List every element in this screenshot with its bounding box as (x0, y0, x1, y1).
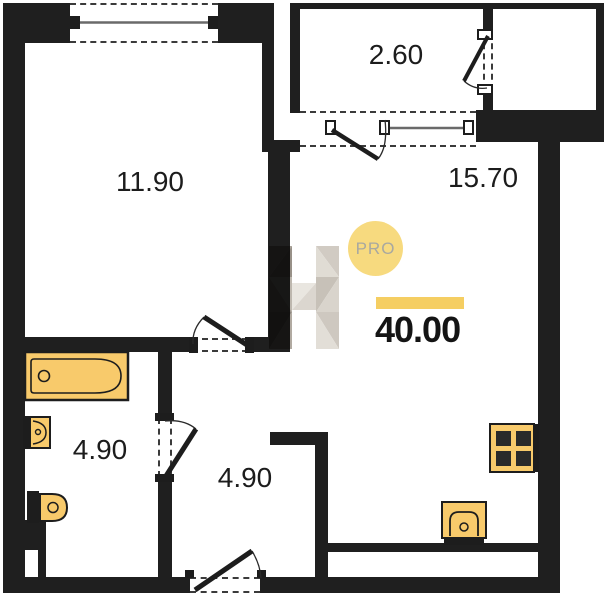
wall-left-outer (3, 3, 25, 593)
bathtub-icon (25, 352, 128, 400)
wall-bathroom-top-b (248, 337, 290, 352)
balcony-doorwindow-opening (300, 111, 476, 147)
hallway-area-label: 4.90 (218, 462, 273, 494)
window-bedroom-opening (70, 3, 218, 43)
bedroom-area-label: 11.90 (116, 166, 184, 198)
wall-right-outer (538, 142, 560, 593)
wall-top-left-corner (3, 3, 70, 43)
wall-bottom-b (260, 577, 560, 593)
total-area-underline (376, 297, 464, 309)
pro-badge: PRO (348, 221, 403, 276)
balcony-partition-door-opening (483, 33, 493, 90)
pro-badge-label: PRO (356, 239, 396, 259)
entrance-door-opening (190, 577, 260, 593)
wall-niche-right (38, 550, 46, 577)
wall-living-bottom (328, 543, 538, 552)
plan-symbols-layer (0, 0, 607, 600)
floorplan-canvas: 11.90 2.60 15.70 4.90 4.90 PRO 40.00 (0, 0, 607, 600)
wall-below-neighbor (476, 110, 604, 142)
wall-balcony-partition-upper (483, 9, 493, 35)
wall-hall-nook-vertical (315, 432, 328, 593)
living-kitchen-area-label: 15.70 (448, 162, 518, 194)
wall-bottom-a (3, 577, 190, 593)
wall-duct-block (23, 520, 46, 550)
wall-interroom-upper (262, 43, 274, 142)
total-area-value: 40.00 (375, 309, 460, 351)
wash-basin-icon (23, 416, 50, 449)
bedroom-door-opening (192, 338, 248, 352)
balcony-area-label: 2.60 (369, 39, 424, 71)
bathroom-area-label: 4.90 (73, 434, 128, 466)
kitchen-sink-icon (442, 502, 486, 545)
wall-bathroom-right-lower (158, 477, 172, 593)
wall-top-thin (290, 3, 604, 9)
stove-icon (490, 424, 539, 472)
wall-interroom-step (262, 140, 300, 152)
wall-balcony-left (290, 3, 300, 113)
wall-neighbor-right (596, 3, 604, 115)
watermark-h-logo (0, 0, 607, 600)
wall-bathroom-top-a (25, 337, 192, 352)
wall-bathroom-right-upper (158, 352, 172, 418)
bathroom-door-opening (158, 418, 172, 477)
wall-interroom-lower (268, 152, 290, 352)
toilet-icon (27, 491, 67, 523)
wall-top-mid (215, 3, 274, 43)
